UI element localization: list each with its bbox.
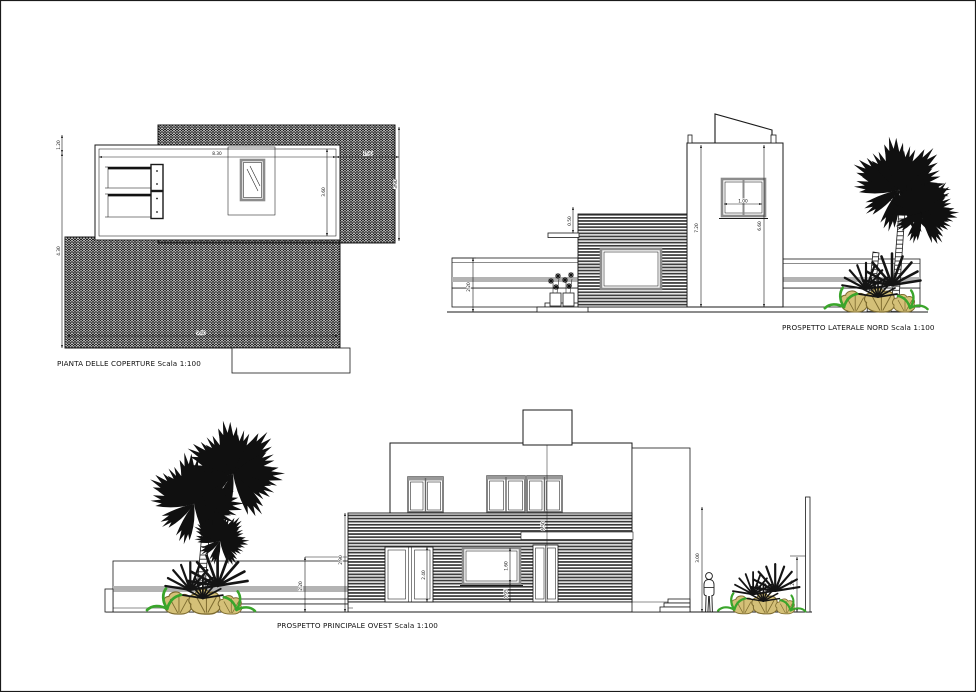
dim-top-width: 8.30: [212, 151, 222, 157]
slab-band: [521, 532, 633, 540]
upper-window: [408, 477, 443, 512]
side-step: [660, 607, 690, 612]
gate-post: [806, 497, 811, 612]
side-step: [664, 603, 690, 607]
north-elevation-title: PROSPETTO LATERALE NORD Scala 1:100: [782, 323, 935, 332]
parapet-post: [771, 135, 776, 143]
wall-end-post: [105, 589, 113, 612]
dim-building-height: 6.50: [541, 521, 547, 531]
dim-tower-height: 6.60: [757, 221, 763, 231]
drawing-sheet: 8.30 1.90 1.20 4.30 3.60 3.90 9.40 PIANT…: [0, 0, 976, 692]
dim-left-upper: 1.20: [56, 140, 62, 150]
left-wall-gray-stripe: [113, 586, 348, 592]
tower: [687, 143, 783, 307]
dim-parapet: 0.50: [567, 216, 573, 226]
roof-terrace-extension: [232, 348, 350, 373]
dim-right-height: 3.00: [695, 553, 701, 563]
dim-wall-height: 2.20: [466, 282, 472, 292]
upper-window: [487, 476, 525, 512]
entry-step: [537, 307, 588, 312]
dim-bottom-width: 9.40: [196, 331, 206, 337]
dim-window-width: 1.00: [738, 199, 748, 205]
dim-left-lower: 4.30: [56, 246, 62, 256]
walkway-step: [238, 599, 348, 604]
flat-roof: [95, 145, 340, 240]
right-wing: [632, 448, 690, 612]
dim-roof-depth: 3.60: [321, 187, 327, 197]
slab: [548, 233, 579, 238]
side-step: [668, 599, 690, 603]
dim-total-height: 7.20: [694, 223, 700, 233]
dim-top-right-width: 1.90: [363, 151, 373, 157]
dim-window-height: 1.60: [504, 561, 510, 571]
architectural-drawing: 8.30 1.90 1.20 4.30 3.60 3.90 9.40 PIANT…: [0, 0, 976, 692]
dim-sill-height: 0.95: [504, 589, 510, 599]
west-elevation-title: PROSPETTO PRINCIPALE OVEST Scala 1:100: [277, 621, 438, 630]
parapet-post: [688, 135, 692, 143]
ground-floor-window: [460, 548, 523, 586]
roof-plan-title: PIANTA DELLE COPERTURE Scala 1:100: [57, 359, 201, 368]
dim-terrace-depth: 3.90: [393, 179, 399, 189]
dim-wall-height: 2.20: [298, 581, 304, 591]
living-room-window: [601, 249, 661, 289]
roof-box: [523, 410, 572, 445]
dim-cladding-height: 2.90: [338, 555, 344, 565]
dim-door-height: 2.40: [421, 570, 427, 580]
secondary-door: [533, 545, 558, 602]
upper-window: [527, 476, 562, 512]
